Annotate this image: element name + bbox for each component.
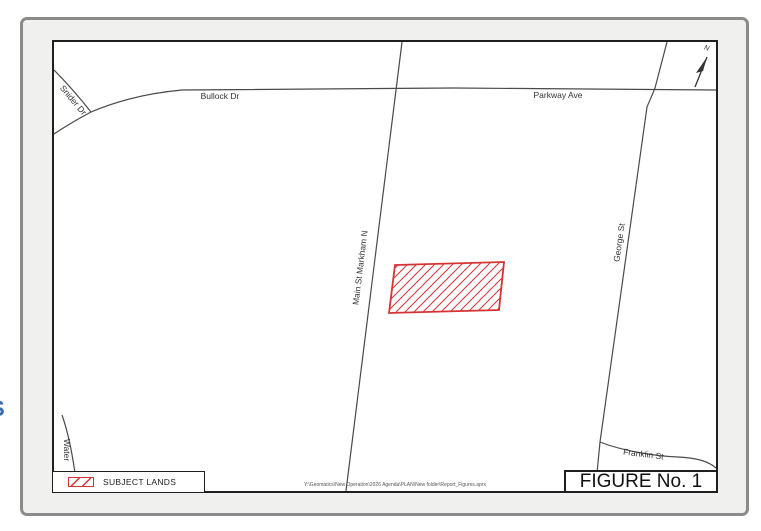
label-main-st-markham-n: Main St Markham N (350, 230, 369, 306)
edge-partial-text: S (0, 396, 5, 422)
roads-layer (54, 42, 716, 491)
legend-label: SUBJECT LANDS (103, 477, 176, 487)
north-label: N (703, 44, 711, 53)
label-parkway-ave: Parkway Ave (534, 90, 583, 100)
map-canvas: N Snider Dr Bullock Dr Parkway Ave Main … (52, 40, 718, 493)
label-snider-dr: Snider Dr (58, 83, 89, 117)
north-arrow-icon: N (695, 44, 711, 87)
legend: SUBJECT LANDS (52, 471, 205, 493)
source-path-text: Y:\Geomatics\New Operation\2026 Agenda\P… (285, 481, 505, 490)
label-franklin-st: Franklin St (623, 447, 665, 462)
figure-title: FIGURE No. 1 (580, 471, 702, 493)
label-water-st: Water (62, 439, 72, 462)
road-george-st (597, 42, 667, 473)
road-bullock-parkway (54, 88, 716, 134)
label-george-st: George St (611, 222, 626, 262)
subject-lands-swatch-icon (68, 477, 94, 487)
map-svg: N Snider Dr Bullock Dr Parkway Ave Main … (54, 42, 716, 491)
label-bullock-dr: Bullock Dr (201, 91, 240, 101)
subject-lands-parcel (389, 262, 504, 313)
figure-title-box: FIGURE No. 1 (564, 470, 718, 493)
